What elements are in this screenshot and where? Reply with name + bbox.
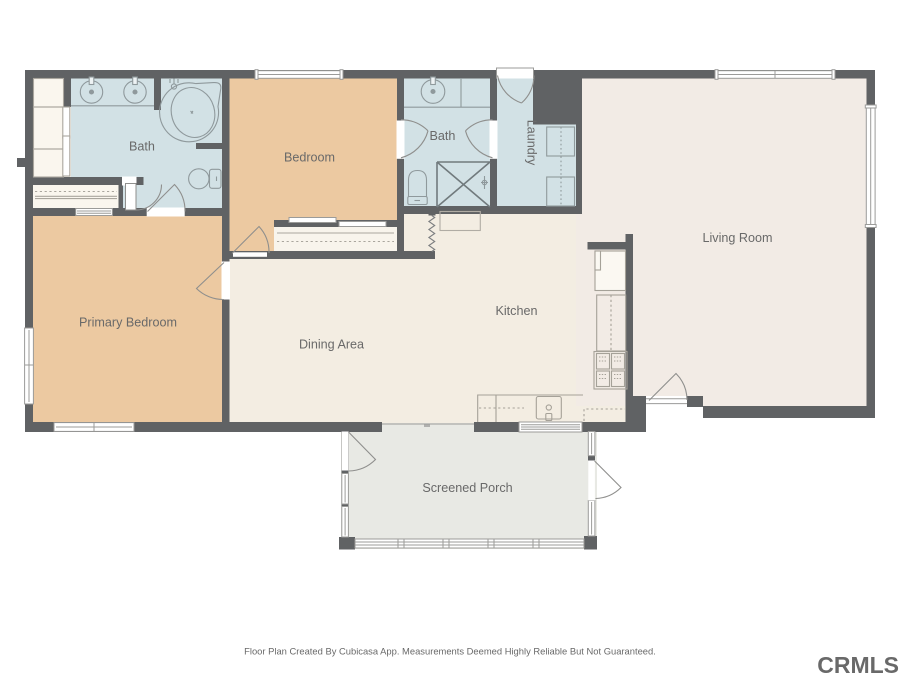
svg-text:Dining Area: Dining Area	[299, 338, 364, 352]
svg-text:Screened Porch: Screened Porch	[422, 481, 512, 495]
svg-text:Floor Plan Created By Cubicasa: Floor Plan Created By Cubicasa App. Meas…	[244, 646, 656, 657]
svg-text:Bedroom: Bedroom	[284, 151, 335, 165]
svg-text:Living Room: Living Room	[703, 231, 773, 245]
svg-text:Primary Bedroom: Primary Bedroom	[79, 316, 177, 330]
svg-text:CRMLS: CRMLS	[817, 652, 899, 675]
svg-text:Kitchen: Kitchen	[495, 304, 537, 318]
svg-text:Bath: Bath	[430, 129, 456, 143]
svg-text:Bath: Bath	[129, 140, 155, 154]
svg-text:Laundry: Laundry	[525, 120, 539, 166]
